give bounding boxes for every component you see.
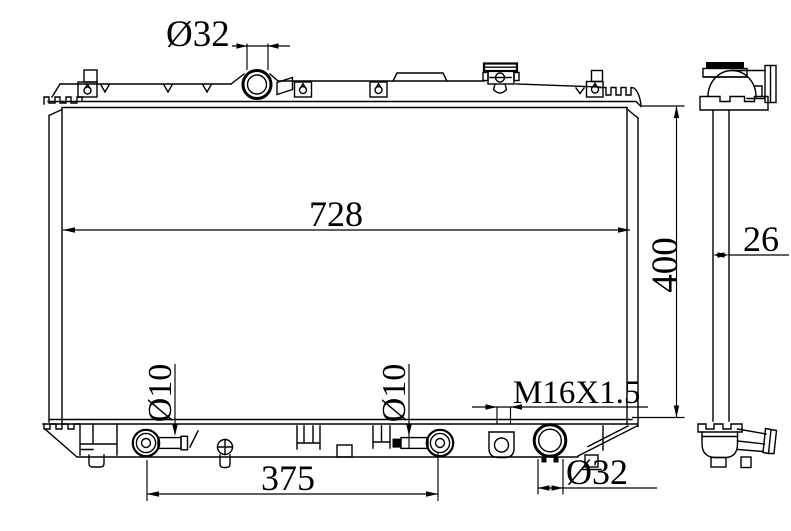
dim-label-filler-neck-diameter: Ø32 <box>166 14 230 55</box>
dim-label-left-pin-diameter: Ø10 <box>142 364 179 423</box>
dim-label-core-thickness: 26 <box>743 219 779 259</box>
mount-boss-mid-left <box>295 82 312 97</box>
radiator-cap <box>483 64 519 94</box>
dim-label-outlet-diameter: Ø32 <box>566 452 628 492</box>
tank-tick-marks <box>101 85 584 94</box>
dimension-annotations: Ø32 728 400 Ø10 Ø10 M16X1.5 375 Ø32 26 <box>63 14 789 501</box>
side-view <box>698 62 777 468</box>
dim-label-right-pin-diameter: Ø10 <box>376 364 413 423</box>
flag-tab <box>277 78 293 95</box>
dim-label-core-height: 400 <box>645 237 686 293</box>
dim-label-core-width: 728 <box>309 194 363 234</box>
drain-plug <box>489 432 514 458</box>
bottom-tank <box>43 424 637 470</box>
mount-pin-left <box>133 430 188 456</box>
side-inlet-fitting <box>700 62 776 110</box>
dim-label-pin-spacing: 375 <box>261 458 315 498</box>
radiator-technical-drawing: Ø32 728 400 Ø10 Ø10 M16X1.5 375 Ø32 26 <box>0 0 791 531</box>
side-outlet-fitting <box>698 424 777 468</box>
bolt-boss <box>218 440 233 468</box>
dim-label-drain-plug-thread: M16X1.5 <box>513 375 640 411</box>
mount-boss-right <box>587 71 604 98</box>
mount-pin-right <box>393 430 454 456</box>
bottom-bracket-left <box>80 424 117 467</box>
side-core <box>713 110 729 421</box>
top-tank <box>44 64 641 107</box>
dim-filler-neck <box>232 43 290 70</box>
mount-boss-mid-right <box>370 82 387 97</box>
drawing-svg: Ø32 728 400 Ø10 Ø10 M16X1.5 375 Ø32 26 <box>0 0 791 531</box>
filler-neck <box>243 71 271 99</box>
